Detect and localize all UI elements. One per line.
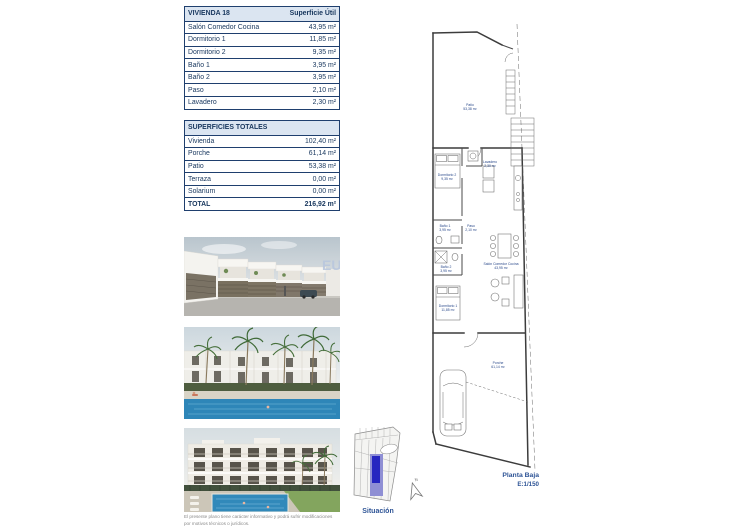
- bed-double-icon: [436, 286, 460, 320]
- total-area: 216,92 m²: [305, 201, 336, 208]
- surface-table-totales: SUPERFICIES TOTALES Vivienda102,40 m² Po…: [184, 120, 340, 211]
- hedge: [184, 383, 340, 391]
- room-label-dormitorio1-area: 11,85 m²: [441, 308, 455, 312]
- room-label-dormitorio2-area: 9,35 m²: [441, 177, 453, 181]
- table-row: Salón Comedor Cocina43,95 m²: [185, 22, 339, 35]
- car-icon: [440, 370, 466, 436]
- sofa-icon: [491, 275, 523, 308]
- surface-name: Porche: [188, 150, 210, 157]
- room-label-salon-area: 43,95 m²: [494, 266, 508, 270]
- surface-area: 0,00 m²: [313, 176, 336, 183]
- render-2-illustration: [184, 327, 340, 419]
- swimming-pool: [184, 399, 340, 419]
- plan-document-page: VIVIENDA 18 Superficie Útil Salón Comedo…: [0, 0, 756, 528]
- room-name: Dormitorio 1: [188, 36, 226, 43]
- room-area: 2,10 m²: [313, 87, 336, 94]
- townhouse-unit: [248, 262, 276, 297]
- pool-deck: [184, 391, 340, 400]
- table-row: Dormitorio 111,85 m²: [185, 34, 339, 47]
- surface-table-vivienda: VIVIENDA 18 Superficie Útil Salón Comedo…: [184, 6, 340, 110]
- watermark-text: EU: [322, 257, 340, 273]
- room-name: Dormitorio 2: [188, 49, 226, 56]
- room-area: 11,85 m²: [309, 36, 336, 43]
- situacion-map: Situación N: [349, 424, 425, 524]
- table-row: Solarium0,00 m²: [185, 186, 339, 199]
- table-header: VIVIENDA 18 Superficie Útil: [185, 7, 339, 22]
- swimmer-figure: [267, 406, 270, 409]
- highlight-plot: [372, 456, 380, 483]
- room-label-bano2-area: 3,95 m²: [440, 269, 452, 273]
- room-label-porche-area: 61,14 m²: [491, 365, 505, 369]
- table-row: Dormitorio 29,35 m²: [185, 47, 339, 60]
- exterior-stair: [506, 70, 515, 114]
- surface-name: Terraza: [188, 176, 211, 183]
- swimmer-figure: [267, 506, 270, 509]
- room-area: 3,95 m²: [313, 74, 336, 81]
- table-header: SUPERFICIES TOTALES: [185, 121, 339, 136]
- surface-area: 53,38 m²: [309, 163, 336, 170]
- surface-name: Patio: [188, 163, 204, 170]
- render-photo-apartments: [184, 428, 340, 512]
- render-3-illustration: [184, 428, 340, 512]
- dining-table-icon: [490, 234, 518, 258]
- table-value-column-label: Superficie Útil: [290, 10, 336, 17]
- table-row: Vivienda102,40 m²: [185, 136, 339, 149]
- townhouse-unit: [218, 259, 248, 297]
- room-name: Lavadero: [188, 99, 217, 106]
- room-label-lavadero-area: 2,30 m²: [484, 164, 496, 168]
- plan-scale: E:1/150: [517, 481, 539, 488]
- room-area: 9,35 m²: [313, 49, 336, 56]
- disclaimer-text: El presente plano tiene carácter informa…: [184, 514, 336, 528]
- bed-double-icon: [435, 154, 460, 188]
- table-row: Porche61,14 m²: [185, 148, 339, 161]
- table-title: SUPERFICIES TOTALES: [188, 124, 267, 131]
- room-area: 3,95 m²: [313, 62, 336, 69]
- north-arrow-icon: N: [406, 477, 422, 500]
- driveway-line: [466, 382, 528, 402]
- table-row: Patio53,38 m²: [185, 161, 339, 174]
- plot-boundary-line: [517, 24, 535, 470]
- person-figure: [284, 286, 286, 296]
- apartment-building: [188, 438, 332, 486]
- plan-title: Planta Baja: [502, 472, 539, 479]
- room-name: Baño 1: [188, 62, 210, 69]
- gate-door-arc: [505, 53, 513, 62]
- north-letter: N: [414, 477, 418, 483]
- swimmer-figure: [243, 502, 246, 505]
- entrance-door-arc: [464, 333, 478, 347]
- surface-area: 61,14 m²: [309, 150, 336, 157]
- surface-area: 102,40 m²: [305, 138, 336, 145]
- room-area: 43,95 m²: [309, 24, 336, 31]
- surface-name: Solarium: [188, 188, 215, 195]
- toilet-icon: [436, 236, 459, 244]
- table-title: VIVIENDA 18: [188, 10, 230, 17]
- room-area: 2,30 m²: [313, 99, 336, 106]
- situacion-label: Situación: [362, 508, 394, 515]
- render-1-illustration: EU: [184, 237, 340, 316]
- table-total-row: TOTAL216,92 m²: [185, 198, 339, 210]
- room-name: Baño 2: [188, 74, 210, 81]
- table-row: Paso2,10 m²: [185, 84, 339, 97]
- hedge: [184, 485, 340, 491]
- swimming-pool: [212, 494, 288, 512]
- sun-loungers: [190, 496, 199, 511]
- surface-name: Vivienda: [188, 138, 214, 145]
- render-photo-townhouses: EU: [184, 237, 340, 316]
- surface-area: 0,00 m²: [313, 188, 336, 195]
- room-label-patio-area: 53,38 m²: [463, 107, 477, 111]
- floor-plan-drawing: Patio 53,38 m² Lavadero 2,30 m² Dormitor…: [422, 20, 562, 500]
- kitchen-appliances: [483, 166, 522, 210]
- table-row: Baño 23,95 m²: [185, 72, 339, 85]
- render-photo-pool-palms: [184, 327, 340, 419]
- room-label-paso-area: 2,10 m²: [465, 228, 477, 232]
- room-name: Paso: [188, 87, 204, 94]
- total-label: TOTAL: [188, 201, 210, 208]
- table-row: Terraza0,00 m²: [185, 173, 339, 186]
- room-label-bano1-area: 3,95 m²: [439, 228, 451, 232]
- townhouse-unit: [276, 265, 302, 297]
- table-row: Baño 13,95 m²: [185, 59, 339, 72]
- shower-icon: [435, 251, 458, 263]
- washer-icon: [468, 151, 478, 161]
- room-name: Salón Comedor Cocina: [188, 24, 259, 31]
- table-row: Lavadero2,30 m²: [185, 97, 339, 109]
